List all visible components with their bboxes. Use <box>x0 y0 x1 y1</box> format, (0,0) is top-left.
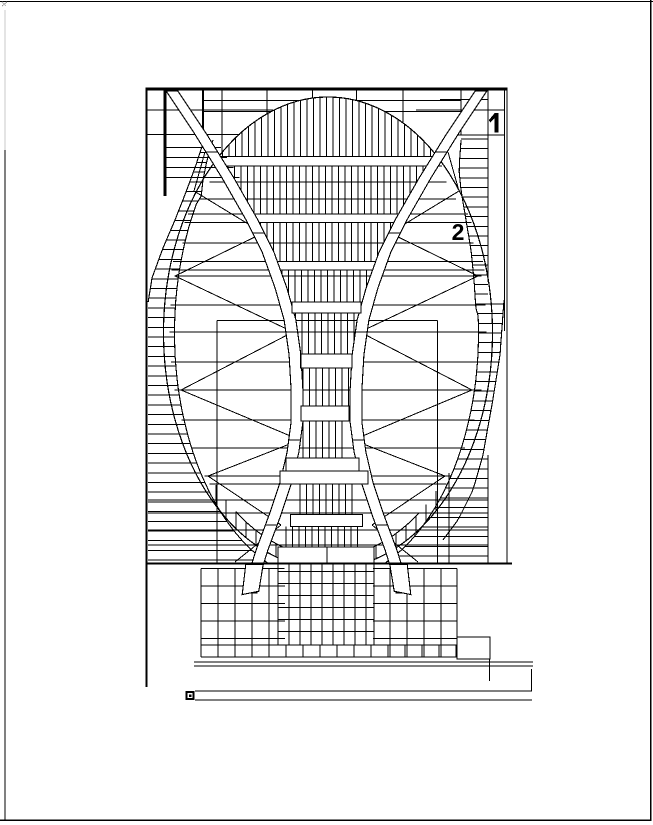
svg-text:2: 2 <box>452 219 465 245</box>
